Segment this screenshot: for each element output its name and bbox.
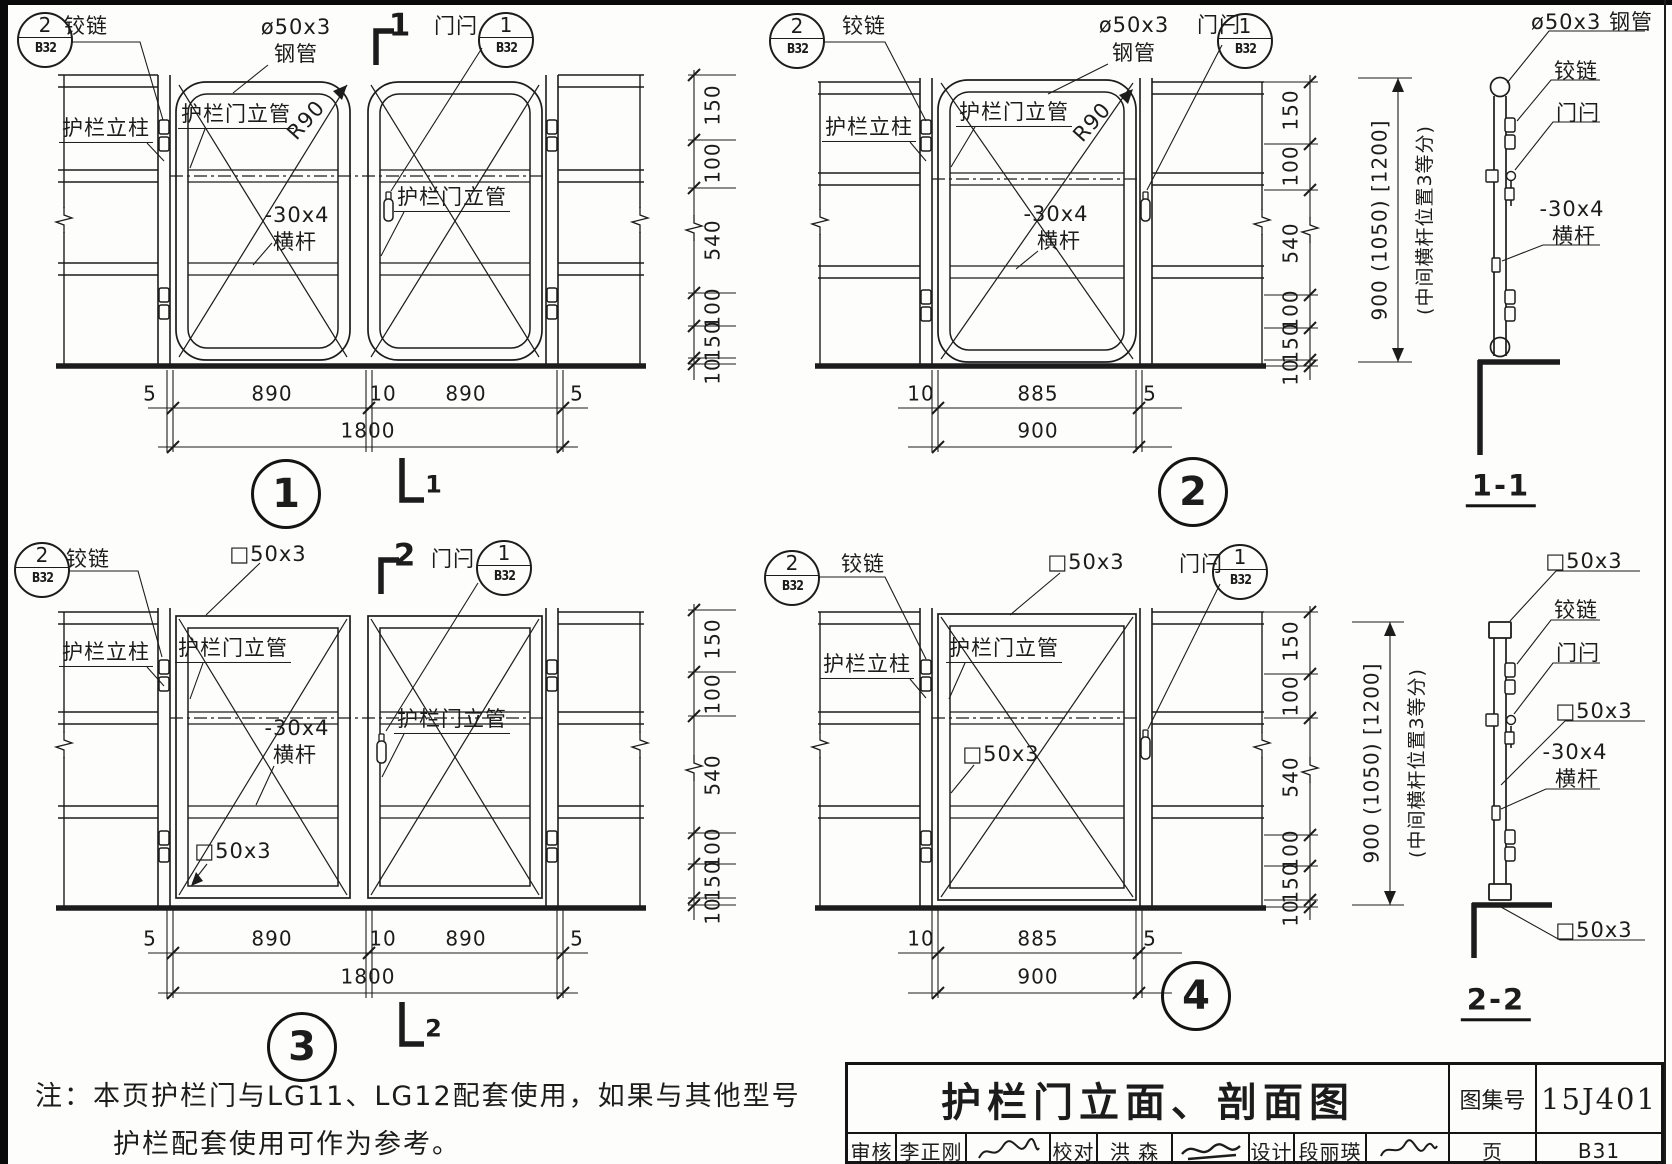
review-signature [965,1134,1049,1164]
s11-height-dim: 900 (1050) [1200] [1370,120,1391,321]
d2-vdim-150a: 150 [1281,89,1302,130]
d1-bar-label: 横杆 [273,231,317,253]
d4-vdim-540: 540 [1281,756,1302,797]
d4-hdim-5: 5 [1143,929,1157,950]
d4-doorpipe-label: 护栏门立管 [946,637,1062,663]
d3-tube-spec: □50x3 [229,543,306,565]
d1-doorpipe2-label: 护栏门立管 [394,186,510,212]
s22-title: 2-2 [1461,984,1531,1021]
page-label: 页 [1448,1134,1535,1164]
d2-pipe-spec: ø50x3 [1099,14,1169,36]
d1-doorpipe-label: 护栏门立管 [178,103,294,129]
proof-name: 洪 森 [1096,1134,1171,1164]
s22-hinge-label: 铰链 [1554,599,1598,621]
d3-latch-label: 门闩 [431,548,475,570]
scan-edge-top [0,0,1672,5]
s22-height-dim: 900 (1050) [1200] [1362,663,1383,864]
ref-detail-number: 1 [1214,546,1266,570]
d3-tube-spec2: □50x3 [194,840,271,862]
d3-hinge-label: 铰链 [66,548,110,570]
detail-ref-bubble: 2B32 [14,542,70,598]
s11-pipe-spec: ø50x3 钢管 [1531,11,1653,33]
s22-bar-label: 横杆 [1555,768,1599,790]
ref-detail-number: 1 [478,542,530,566]
detail-ref-bubble: 2B32 [769,13,825,69]
d1-vdim-540: 540 [703,219,724,260]
d4-hdim-885: 885 [1017,929,1058,950]
d1-hdim-5a: 5 [143,384,157,405]
title-block: 护栏门立面、剖面图 图集号 15J401 审核 李正刚 校对 洪 森 设计 段丽… [845,1062,1664,1164]
d2-vdim-100a: 100 [1281,145,1302,186]
d1-hdim-1800: 1800 [341,421,396,442]
review-label: 审核 [848,1134,895,1164]
d2-hdim-10: 10 [907,384,934,405]
detail-ref-bubble: 2B32 [764,550,820,606]
proof-signature [1171,1134,1248,1164]
s22-latch-label: 门闩 [1556,642,1600,664]
d2-hdim-5: 5 [1143,384,1157,405]
sheet-title: 护栏门立面、剖面图 [848,1065,1448,1132]
d4-vdim-100a: 100 [1281,675,1302,716]
d4-hdim-900: 900 [1017,967,1058,988]
ref-page-number: B32 [781,576,802,598]
d1-hdim-10: 10 [369,384,396,405]
d3-post-label: 护栏立柱 [59,641,153,667]
d3-doorpipe2-label: 护栏门立管 [394,708,510,734]
sheet-note: 注：本页护栏门与LG11、LG12配套使用，如果与其他型号 护栏配套使用可作为参… [35,1074,801,1161]
drawing-number-bubble: 4 [1161,961,1231,1031]
ref-detail-number: 1 [480,14,532,38]
detail-ref-bubble: 2B32 [17,12,73,68]
detail-ref-bubble: 1B32 [1212,544,1268,600]
d1-post-label: 护栏立柱 [59,117,153,143]
s22-tube-spec-mid: □50x3 [1555,700,1632,722]
ref-detail-number: 1 [1219,15,1271,39]
d3-vdim-150a: 150 [703,618,724,659]
d1-hdim-5b: 5 [570,384,584,405]
d3-doorpipe-label: 护栏门立管 [175,637,291,663]
d4-tube-spec2: □50x3 [962,743,1039,765]
d4-tube-spec: □50x3 [1047,551,1124,573]
s11-latch-label: 门闩 [1556,102,1600,124]
drawing-sheet: 铰链ø50x3钢管门闩护栏立柱护栏门立管R90-30x4横杆护栏门立管11150… [0,0,1672,1164]
d1-pipe-spec: ø50x3 [261,16,331,38]
page-number: B31 [1535,1134,1661,1164]
s22-bar-spec: -30x4 [1542,741,1607,763]
d3-hdim-890b: 890 [445,929,486,950]
d2-pipe-spec2: 钢管 [1112,42,1156,64]
d2-vdim-540: 540 [1281,222,1302,263]
d3-hdim-5b: 5 [570,929,584,950]
detail-ref-bubble: 1B32 [478,12,534,68]
s11-hinge-label: 铰链 [1554,60,1598,82]
d2-bar-label: 横杆 [1037,230,1081,252]
proof-label: 校对 [1049,1134,1096,1164]
d1-cut-number-top: 1 [389,10,412,43]
d4-vdim-150a: 150 [1281,620,1302,661]
d3-vdim-100a: 100 [703,673,724,714]
detail-ref-bubble: 1B32 [1217,13,1273,69]
s11-midbar-note: (中间横杆位置3等分) [1416,125,1436,315]
d4-post-label: 护栏立柱 [820,653,914,679]
ref-page-number: B32 [31,568,52,590]
d1-cut-number-bottom: 1 [425,472,443,497]
d2-vdim-10: 10 [1281,358,1302,385]
ref-page-number: B32 [1234,39,1255,61]
ref-page-number: B32 [786,39,807,61]
d2-post-label: 护栏立柱 [822,116,916,142]
ref-page-number: B32 [34,38,55,60]
design-signature [1365,1134,1448,1164]
d4-vdim-10: 10 [1281,899,1302,926]
d3-bar-spec: -30x4 [264,717,329,739]
drawing-number-bubble: 2 [1158,457,1228,527]
d3-bar-label: 横杆 [273,744,317,766]
s22-tube-spec-bot: □50x3 [1555,919,1632,941]
note-line-2: 护栏配套使用可作为参考。 [113,1122,801,1161]
d1-hdim-890b: 890 [445,384,486,405]
d2-hdim-885: 885 [1017,384,1058,405]
drawing-number-bubble: 1 [251,459,321,529]
ref-detail-number: 2 [771,15,823,39]
d3-hdim-5a: 5 [143,929,157,950]
d2-hdim-900: 900 [1017,421,1058,442]
s11-bar-label: 横杆 [1552,225,1596,247]
s11-bar-spec: -30x4 [1539,198,1604,220]
ref-page-number: B32 [495,38,516,60]
drawing-number-bubble: 3 [267,1012,337,1082]
d3-hdim-890a: 890 [251,929,292,950]
d2-doorpipe-label: 护栏门立管 [956,101,1072,127]
scan-edge-left [0,0,8,1164]
ref-detail-number: 2 [19,14,71,38]
ref-detail-number: 2 [766,552,818,576]
design-label: 设计 [1248,1134,1293,1164]
review-name: 李正刚 [895,1134,965,1164]
d1-vdim-150a: 150 [703,84,724,125]
d1-vdim-150b: 150 [703,320,724,361]
d1-latch-label: 门闩 [434,15,478,37]
d4-hinge-label: 铰链 [841,553,885,575]
d2-hinge-label: 铰链 [842,15,886,37]
d4-vdim-150b: 150 [1281,862,1302,903]
d3-vdim-540: 540 [703,754,724,795]
ref-page-number: B32 [493,566,514,588]
d4-hdim-10: 10 [907,929,934,950]
s22-midbar-note: (中间横杆位置3等分) [1408,668,1428,858]
title-block-row1: 护栏门立面、剖面图 图集号 15J401 [848,1065,1661,1134]
d1-vdim-100a: 100 [703,142,724,183]
d3-vdim-150b: 150 [703,860,724,901]
s22-tube-spec-top: □50x3 [1545,550,1622,572]
note-line-1: 注：本页护栏门与LG11、LG12配套使用，如果与其他型号 [35,1074,801,1113]
d2-bar-spec: -30x4 [1023,203,1088,225]
d1-vdim-10: 10 [703,357,724,384]
d3-cut-number-top: 2 [394,540,417,573]
s11-title: 1-1 [1466,470,1536,507]
d1-hdim-890a: 890 [251,384,292,405]
d3-hdim-1800: 1800 [341,967,396,988]
ref-detail-number: 2 [16,544,68,568]
detail-ref-bubble: 1B32 [476,540,532,596]
d3-hdim-10: 10 [369,929,396,950]
ref-page-number: B32 [1229,570,1250,592]
atlas-number-value: 15J401 [1535,1065,1661,1132]
atlas-number-label: 图集号 [1448,1065,1535,1132]
d3-cut-number-bottom: 2 [425,1016,443,1041]
title-block-row2: 审核 李正刚 校对 洪 森 设计 段丽瑛 页 B31 [848,1134,1661,1164]
d1-bar-spec: -30x4 [264,204,329,226]
d1-pipe-spec2: 钢管 [274,43,318,65]
d3-vdim-10: 10 [703,897,724,924]
design-name: 段丽瑛 [1293,1134,1365,1164]
scan-edge-right [1664,0,1666,1164]
